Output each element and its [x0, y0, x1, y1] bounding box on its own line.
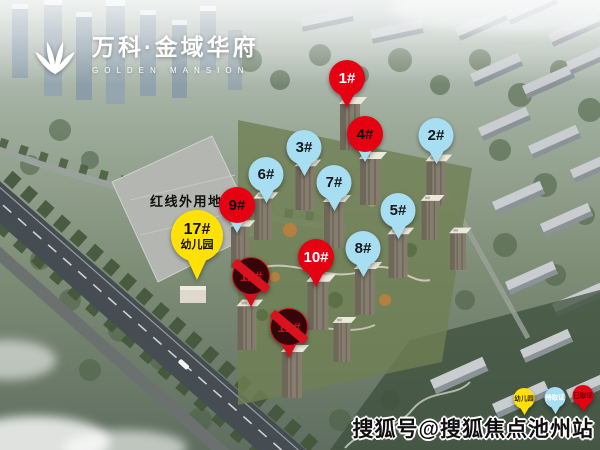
pin-label: 9# — [229, 198, 246, 213]
pin-head: 3# — [287, 130, 322, 165]
pin-head: 待取证 — [545, 387, 566, 408]
sold-out-bar-icon — [269, 309, 308, 344]
pin-label: 6# — [258, 167, 275, 182]
pin-label: 5# — [390, 203, 407, 218]
pin-sublabel: 幼儿园 — [181, 240, 214, 251]
pin-head: 8# — [346, 231, 381, 266]
marker-4: 4# — [347, 116, 383, 162]
pin-label: 已取证 — [573, 392, 592, 398]
pin-head: 9# — [219, 187, 255, 223]
pin-label: 17# — [184, 222, 211, 238]
marker-8: 8# — [346, 231, 381, 277]
legend-item-待取证: 待取证 — [545, 387, 566, 414]
pin-head: 4# — [347, 116, 383, 152]
marker-7: 7# — [317, 165, 352, 211]
pin-label: 7# — [326, 175, 343, 190]
pin-head: 幼儿园 — [514, 388, 535, 409]
pin-head: 7# — [317, 165, 352, 200]
sold-out-bar-icon — [231, 258, 270, 293]
pin-label: 8# — [355, 241, 372, 256]
pin-head: 2# — [419, 118, 454, 153]
vanke-fan-icon — [32, 26, 78, 84]
pin-label: 3# — [296, 140, 313, 155]
legend-item-幼儿园: 幼儿园 — [514, 388, 535, 415]
pin-label: 幼儿园 — [514, 395, 533, 401]
pin-label: 1# — [339, 71, 356, 86]
marker-2: 2# — [419, 118, 454, 164]
site-map: 万科·金域华府 GOLDEN MANSION 红线外用地 1#3#4#2#6#7… — [0, 0, 600, 450]
pin-head: 11# — [232, 257, 270, 295]
watermark: 搜狐号@搜狐焦点池州站 — [353, 413, 594, 443]
marker-9: 9# — [219, 187, 255, 233]
marker-1: 1# — [329, 60, 365, 108]
pin-label: 4# — [357, 127, 374, 142]
marker-10: 10# — [298, 239, 334, 287]
marker-17: 17#幼儿园 — [171, 210, 223, 280]
pin-label: 2# — [428, 128, 445, 143]
site-label: 红线外用地 — [150, 191, 223, 210]
pin-head: 17#幼儿园 — [171, 210, 223, 262]
pin-head: 12# — [270, 308, 308, 346]
marker-5: 5# — [381, 193, 416, 239]
logo-title: 万科·金域华府 — [92, 35, 259, 60]
logo: 万科·金域华府 GOLDEN MANSION — [32, 26, 259, 84]
logo-subtitle: GOLDEN MANSION — [92, 66, 259, 75]
legend-item-已取证: 已取证 — [573, 385, 594, 412]
pin-head: 已取证 — [573, 385, 594, 406]
pin-head: 1# — [329, 60, 365, 96]
pin-head: 10# — [298, 239, 334, 275]
pin-label: 10# — [303, 250, 328, 265]
pin-head: 5# — [381, 193, 416, 228]
pin-label: 待取证 — [545, 394, 564, 400]
marker-12: 12# — [270, 308, 308, 358]
marker-11: 11# — [232, 257, 270, 307]
